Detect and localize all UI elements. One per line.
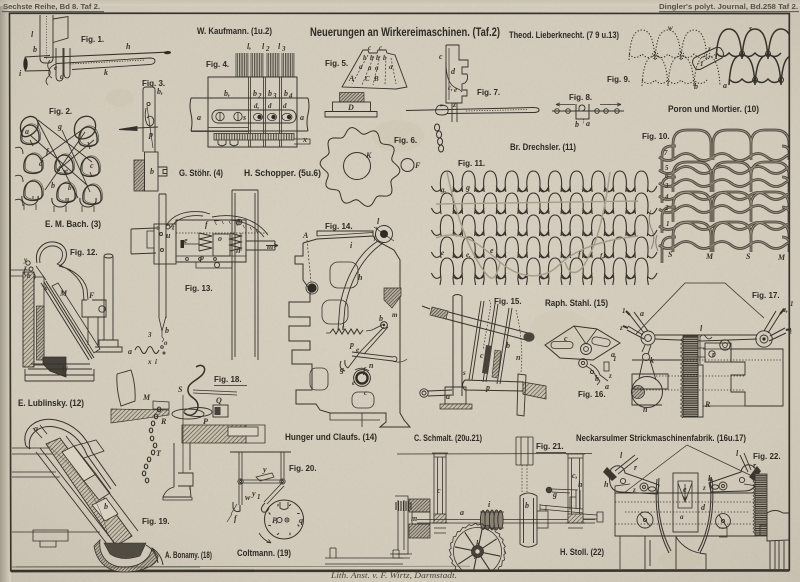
svg-text:F: F (88, 291, 95, 300)
svg-text:g: g (465, 183, 470, 192)
svg-text:Sechste Reihe, Bd 8. Taf 2.: Sechste Reihe, Bd 8. Taf 2. (3, 4, 100, 11)
svg-text:Fig. 12.: Fig. 12. (70, 248, 98, 257)
svg-text:r: r (474, 553, 477, 561)
svg-text:C: C (365, 75, 370, 83)
svg-text:b,: b, (157, 87, 163, 96)
svg-text:e: e (454, 86, 457, 94)
svg-text:Lith. Anst. v. F. Wirtz, Darms: Lith. Anst. v. F. Wirtz, Darmstadt. (330, 571, 457, 580)
svg-text:a,: a, (782, 305, 788, 314)
svg-text:Fig. 18.: Fig. 18. (214, 375, 242, 384)
svg-text:g: g (57, 122, 62, 131)
svg-text:4: 4 (664, 193, 669, 201)
svg-text:b: b (370, 54, 374, 62)
svg-text:b: b (104, 502, 108, 511)
svg-text:Hunger und Claufs. (14): Hunger und Claufs. (14) (285, 432, 377, 443)
svg-text:P,: P, (272, 516, 278, 525)
svg-text:b,: b, (224, 89, 230, 98)
svg-text:R: R (160, 417, 167, 426)
svg-text:M: M (59, 289, 68, 298)
svg-text:z: z (707, 45, 711, 53)
svg-text:H. Stoll. (22): H. Stoll. (22) (560, 547, 604, 558)
svg-text:f,: f, (600, 252, 604, 260)
svg-text:a: a (723, 81, 727, 90)
svg-text:3: 3 (147, 331, 152, 339)
svg-text:c: c (439, 52, 443, 61)
svg-text:a: a (25, 127, 29, 136)
svg-text:Q: Q (216, 396, 222, 405)
svg-text:m: m (392, 311, 398, 319)
svg-text:w: w (245, 493, 251, 502)
svg-text:z: z (632, 486, 636, 494)
svg-text:G. Stöhr. (4): G. Stöhr. (4) (179, 168, 223, 179)
svg-text:c: c (368, 44, 371, 52)
svg-text:e: e (490, 246, 494, 255)
svg-text:1: 1 (613, 355, 617, 363)
svg-text:R: R (704, 400, 711, 409)
svg-text:2: 2 (664, 204, 669, 212)
svg-text:Fig. 4.: Fig. 4. (206, 60, 229, 69)
svg-text:e: e (683, 485, 687, 494)
svg-text:S: S (746, 252, 751, 261)
svg-text:7: 7 (664, 149, 668, 157)
svg-text:S: S (178, 385, 183, 394)
svg-text:m: m (267, 242, 273, 251)
svg-text:Fig. 14.: Fig. 14. (325, 222, 353, 231)
svg-text:n: n (236, 246, 241, 255)
svg-text:g: g (552, 490, 557, 499)
svg-text:S: S (668, 250, 673, 259)
svg-text:c: c (364, 389, 367, 397)
svg-text:c,: c, (448, 84, 453, 92)
svg-text:1: 1 (257, 493, 261, 501)
svg-text:x: x (43, 284, 48, 292)
svg-text:d,: d, (254, 102, 260, 110)
svg-text:Fig. 5.: Fig. 5. (325, 59, 348, 68)
svg-text:Poron und Mortier. (10): Poron und Mortier. (10) (668, 104, 759, 115)
svg-text:6: 6 (665, 172, 669, 180)
svg-text:4: 4 (288, 92, 293, 100)
svg-text:3: 3 (272, 92, 277, 100)
svg-text:a: a (446, 392, 450, 401)
svg-text:1: 1 (790, 300, 794, 308)
svg-text:Fig. 11.: Fig. 11. (458, 159, 485, 168)
svg-text:Fig. 17.: Fig. 17. (752, 291, 780, 300)
svg-text:Fig. 19.: Fig. 19. (142, 517, 170, 526)
svg-text:Dingler's polyt. Journal, Bd.2: Dingler's polyt. Journal, Bd.258 Taf 2. (659, 4, 798, 11)
svg-text:b: b (150, 167, 154, 176)
svg-text:y: y (262, 465, 267, 474)
svg-text:z: z (702, 484, 706, 492)
svg-text:a: a (197, 113, 201, 122)
svg-text:b: b (268, 89, 272, 98)
svg-text:a: a (680, 513, 684, 521)
svg-text:y: y (251, 489, 256, 498)
svg-text:Fig. 16.: Fig. 16. (578, 390, 606, 399)
svg-text:q: q (299, 516, 303, 525)
svg-text:Coltmann. (19): Coltmann. (19) (237, 548, 291, 559)
svg-text:3: 3 (281, 45, 286, 53)
svg-text:M: M (777, 253, 786, 262)
svg-text:k: k (650, 356, 654, 365)
svg-text:b: b (165, 326, 169, 335)
svg-text:x: x (302, 135, 307, 144)
svg-text:d: d (283, 102, 287, 110)
svg-text:A. Bonamy. (18): A. Bonamy. (18) (165, 550, 212, 561)
svg-text:Fig. 7.: Fig. 7. (477, 88, 500, 97)
svg-text:a: a (300, 113, 304, 122)
svg-text:b: b (383, 54, 387, 62)
svg-text:k: k (476, 539, 480, 548)
svg-text:b: b (376, 54, 380, 62)
svg-text:a: a (368, 64, 372, 72)
svg-text:o: o (218, 234, 222, 243)
svg-text:b: b (575, 120, 579, 129)
svg-text:B: B (373, 75, 379, 83)
svg-text:b: b (595, 374, 599, 383)
svg-text:1: 1 (666, 220, 670, 228)
svg-text:b: b (68, 184, 72, 192)
svg-text:c: c (564, 334, 568, 343)
svg-text:b: b (363, 54, 367, 62)
svg-text:w: w (668, 24, 673, 32)
svg-text:5: 5 (665, 164, 669, 172)
svg-text:a: a (375, 64, 379, 72)
svg-text:b: b (33, 45, 37, 54)
svg-text:Fig. 2.: Fig. 2. (49, 107, 72, 116)
svg-text:m: m (411, 514, 417, 523)
svg-text:b: b (51, 181, 55, 190)
svg-text:D: D (347, 103, 354, 112)
svg-text:b: b (694, 82, 698, 91)
svg-text:e: e (184, 236, 188, 245)
svg-text:a: a (640, 309, 644, 318)
svg-text:c: c (437, 486, 441, 495)
svg-text:c,: c, (572, 471, 578, 480)
svg-text:l,: l, (247, 42, 251, 51)
svg-text:c: c (90, 161, 94, 170)
svg-text:h: h (358, 273, 363, 282)
svg-text:z: z (23, 264, 27, 272)
svg-text:x: x (147, 358, 152, 366)
svg-text:W. Kaufmann. (1u.2): W. Kaufmann. (1u.2) (197, 26, 272, 37)
svg-text:a: a (128, 347, 132, 356)
svg-text:Neckarsulmer Strickmaschinenfa: Neckarsulmer Strickmaschinenfabrik. (16u… (576, 433, 746, 444)
svg-text:Fig. 6.: Fig. 6. (394, 136, 417, 145)
svg-text:s: s (748, 24, 752, 33)
svg-text:Fig. 1.: Fig. 1. (81, 35, 104, 44)
svg-text:h: h (578, 480, 583, 489)
svg-text:3: 3 (664, 182, 669, 190)
svg-text:i: i (155, 358, 157, 366)
svg-text:P: P (203, 417, 208, 426)
svg-text:Fig. 9.: Fig. 9. (607, 75, 630, 84)
svg-text:a: a (605, 382, 609, 391)
svg-text:e: e (352, 379, 355, 387)
svg-text:b: b (27, 272, 31, 280)
svg-text:c: c (379, 44, 382, 52)
svg-text:b: b (525, 501, 529, 510)
svg-text:Fig. 8.: Fig. 8. (569, 93, 592, 102)
svg-text:b: b (379, 314, 383, 323)
svg-text:E. M. Bach. (3): E. M. Bach. (3) (45, 219, 101, 230)
svg-text:n: n (369, 361, 374, 370)
svg-text:u: u (166, 231, 171, 240)
svg-text:1: 1 (700, 60, 704, 68)
svg-text:a: a (34, 424, 38, 433)
svg-text:a: a (359, 63, 363, 71)
svg-text:E. Lublinsky. (12): E. Lublinsky. (12) (18, 398, 84, 409)
svg-text:o: o (164, 339, 168, 347)
svg-text:a: a (389, 63, 393, 71)
svg-text:Fig. 22.: Fig. 22. (753, 452, 781, 461)
svg-text:d: d (268, 102, 272, 110)
svg-text:g: g (339, 365, 344, 374)
svg-text:n: n (516, 353, 521, 362)
svg-text:e: e (441, 249, 444, 257)
svg-text:d: d (57, 165, 61, 173)
svg-text:z: z (608, 372, 612, 380)
svg-text:Theod. Lieberknecht. (7 9 u.13: Theod. Lieberknecht. (7 9 u.13) (509, 30, 619, 41)
svg-text:2: 2 (265, 45, 270, 53)
svg-text:z: z (619, 324, 623, 332)
svg-text:A: A (302, 231, 309, 240)
svg-text:1: 1 (622, 307, 626, 315)
svg-text:p: p (485, 383, 490, 392)
svg-text:Fig. 20.: Fig. 20. (289, 464, 317, 473)
svg-text:H. Schopper. (5u.6): H. Schopper. (5u.6) (244, 168, 321, 179)
svg-text:s: s (242, 113, 246, 122)
svg-text:Neuerungen an Wirkereimaschine: Neuerungen an Wirkereimaschinen. (Taf.2) (310, 25, 500, 39)
svg-text:b: b (506, 341, 510, 350)
svg-text:b: b (253, 89, 257, 98)
svg-text:M: M (142, 393, 151, 402)
svg-text:s: s (462, 369, 466, 377)
svg-text:h: h (126, 42, 131, 51)
svg-text:n: n (643, 405, 648, 414)
svg-text:z: z (788, 328, 792, 336)
svg-text:Br. Drechsler. (11): Br. Drechsler. (11) (510, 142, 576, 153)
svg-text:Fig. 21.: Fig. 21. (536, 442, 564, 451)
svg-text:C. Schmalt. (20u.21): C. Schmalt. (20u.21) (414, 433, 482, 444)
svg-text:b: b (284, 89, 288, 98)
svg-text:A: A (348, 74, 355, 83)
svg-text:Fig. 13.: Fig. 13. (185, 284, 213, 293)
svg-text:g,: g, (440, 186, 447, 194)
svg-text:h: h (604, 480, 609, 489)
svg-text:Raph. Stahl. (15): Raph. Stahl. (15) (545, 298, 608, 309)
svg-text:p: p (349, 340, 354, 349)
svg-text:e: e (65, 167, 68, 175)
svg-text:h: h (708, 474, 713, 483)
svg-text:M: M (705, 252, 714, 261)
svg-text:e,: e, (466, 251, 471, 259)
svg-text:2: 2 (257, 92, 262, 100)
svg-text:p: p (148, 130, 153, 139)
svg-text:c: c (480, 351, 484, 360)
svg-text:a: a (460, 508, 464, 517)
svg-text:k: k (104, 68, 108, 77)
svg-text:p: p (199, 253, 204, 262)
svg-text:K: K (365, 151, 372, 160)
svg-text:Fig. 10.: Fig. 10. (642, 132, 670, 141)
svg-text:F: F (414, 161, 421, 170)
svg-text:a: a (586, 119, 590, 128)
svg-text:e: e (356, 346, 359, 354)
svg-text:e: e (54, 64, 57, 72)
